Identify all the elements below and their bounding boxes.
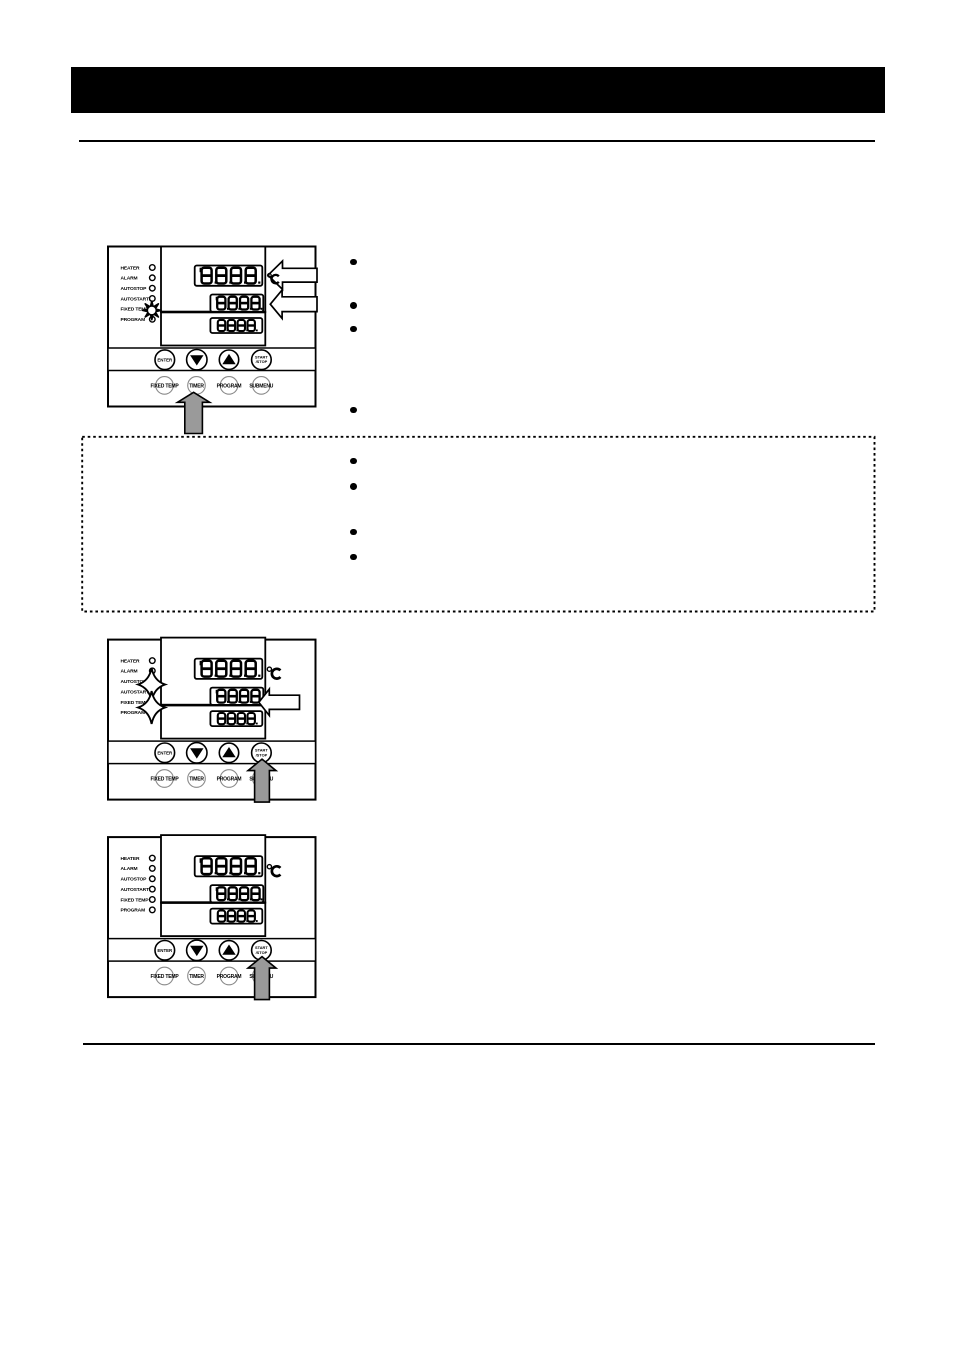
- svg-text:ENTER: ENTER: [157, 750, 173, 755]
- svg-text:FIXED TEMP: FIXED TEMP: [121, 897, 150, 903]
- svg-text:FIXED TEMP: FIXED TEMP: [150, 383, 179, 389]
- svg-text:PROGRAM: PROGRAM: [121, 710, 146, 716]
- svg-text:ENTER: ENTER: [157, 948, 173, 953]
- svg-text:/STOP: /STOP: [256, 950, 268, 955]
- svg-text:TIMER: TIMER: [189, 776, 204, 782]
- svg-text:AUTOSTART: AUTOSTART: [121, 887, 150, 893]
- svg-text:ALARM: ALARM: [121, 866, 138, 872]
- svg-text:FIXED TEMP: FIXED TEMP: [150, 776, 179, 782]
- svg-text:TIMER: TIMER: [189, 383, 204, 389]
- svg-text:HEATER: HEATER: [121, 265, 140, 271]
- svg-text:AUTOSTART: AUTOSTART: [121, 296, 150, 302]
- svg-text:ENTER: ENTER: [157, 357, 173, 362]
- svg-text:AUTOSTOP: AUTOSTOP: [121, 877, 148, 883]
- svg-text:ALARM: ALARM: [121, 276, 138, 282]
- svg-text:SUBMENU: SUBMENU: [249, 383, 273, 389]
- svg-text:/STOP: /STOP: [256, 359, 268, 364]
- svg-text:PROGRAM: PROGRAM: [217, 776, 242, 782]
- svg-text:FIXED TEMP: FIXED TEMP: [150, 974, 179, 980]
- svg-text:PROGRAM: PROGRAM: [121, 908, 146, 914]
- svg-text:PROGRAM: PROGRAM: [217, 383, 242, 389]
- svg-text:AUTOSTOP: AUTOSTOP: [121, 286, 148, 292]
- svg-text:TIMER: TIMER: [189, 974, 204, 980]
- svg-text:ALARM: ALARM: [121, 669, 138, 675]
- svg-text:PROGRAM: PROGRAM: [217, 974, 242, 980]
- svg-text:AUTOSTART: AUTOSTART: [121, 689, 150, 695]
- svg-text:HEATER: HEATER: [121, 856, 140, 862]
- svg-text:/STOP: /STOP: [256, 752, 268, 757]
- svg-text:PROGRAM: PROGRAM: [121, 317, 146, 323]
- svg-text:HEATER: HEATER: [121, 658, 140, 664]
